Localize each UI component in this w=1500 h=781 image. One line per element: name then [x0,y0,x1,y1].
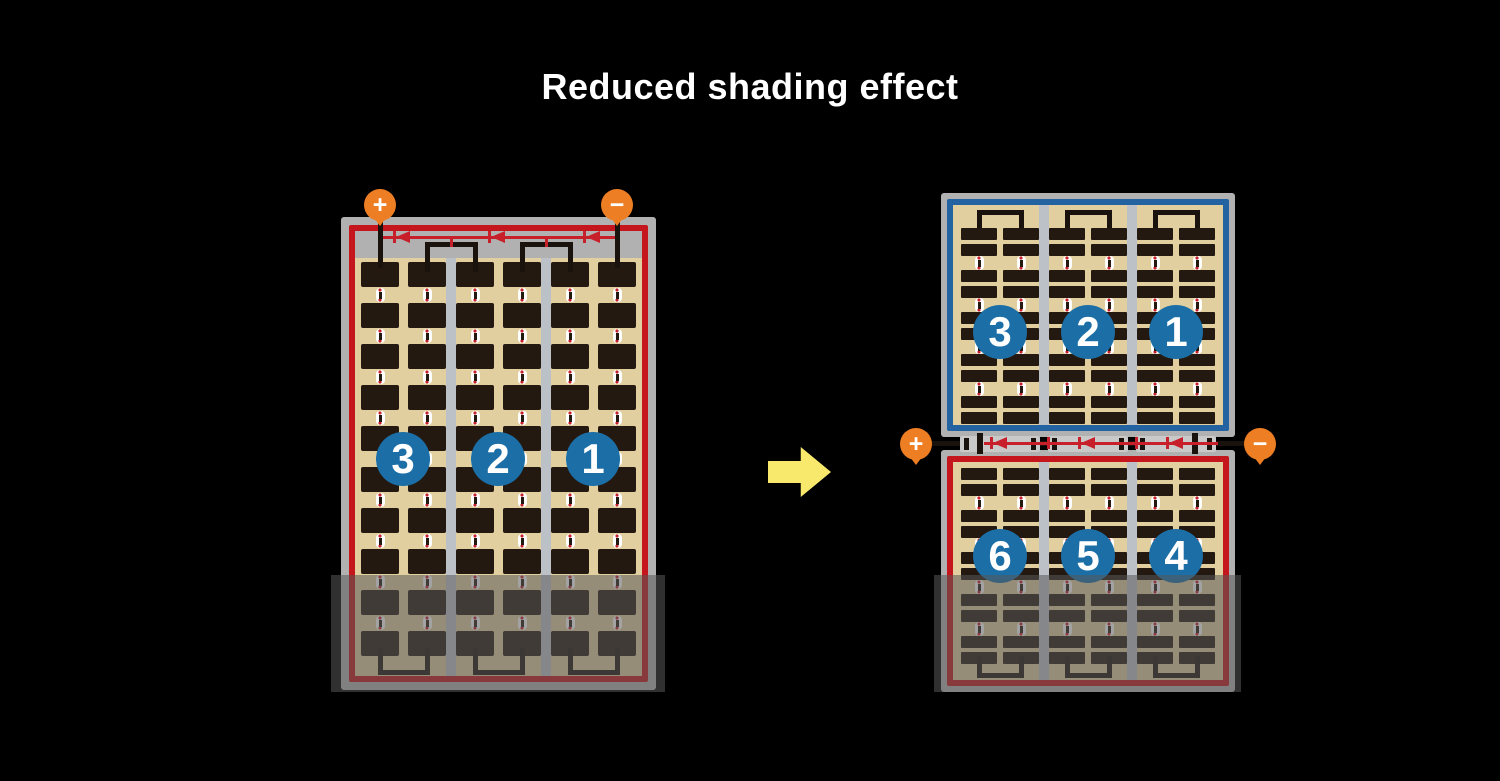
string-number-badge: 2 [471,432,525,486]
string-number-badge: 1 [566,432,620,486]
shade-overlay-right [934,575,1241,692]
string-number: 1 [1164,311,1187,353]
string-number-badge: 2 [1061,305,1115,359]
diagram-canvas: Reduced shading effect 321 321 654 + − +… [0,0,1500,781]
string-number-badge: 3 [973,305,1027,359]
string-number-badge: 3 [376,432,430,486]
diode-tick [1135,437,1138,449]
minus-terminal-label: − [610,193,625,218]
plus-terminal-label: + [909,432,924,457]
string-number: 6 [988,535,1011,577]
plus-terminal-left-panel: + [364,189,396,221]
plus-terminal-label: + [373,193,388,218]
string-number-badge: 1 [1149,305,1203,359]
string-number: 3 [391,438,414,480]
string-number: 2 [486,438,509,480]
string-number: 1 [581,438,604,480]
string-number: 4 [1164,535,1187,577]
string-number: 3 [988,311,1011,353]
bypass-diode-icon [993,437,1007,449]
minus-terminal-right-panel: − [1244,428,1276,460]
string-number: 2 [1076,311,1099,353]
minus-terminal-label: − [1253,432,1268,457]
diode-tick [1047,437,1050,449]
junction-contact [964,438,969,450]
bypass-diode-icon [1169,437,1183,449]
shade-overlay-left [331,575,665,692]
string-number: 5 [1076,535,1099,577]
terminal-contact-bar [977,433,983,454]
plus-terminal-right-panel: + [900,428,932,460]
minus-terminal-left-panel: − [601,189,633,221]
junction-wiring [0,0,1500,781]
bypass-diode-icon [1081,437,1095,449]
